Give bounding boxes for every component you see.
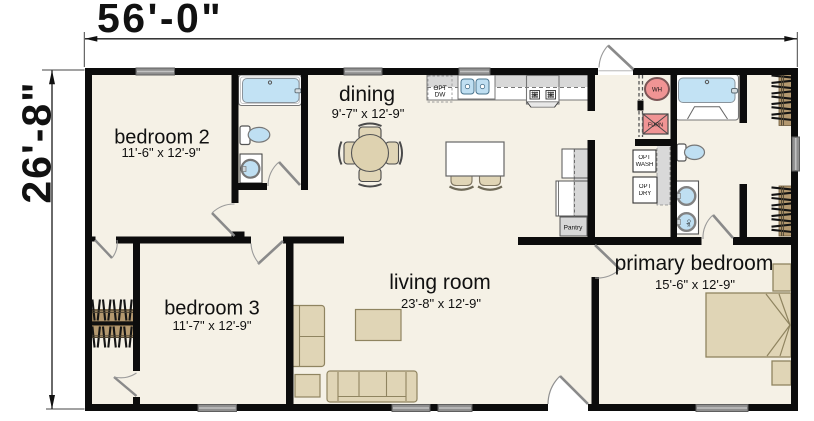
svg-text:bedroom 3: bedroom 3 (164, 298, 260, 320)
svg-text:OPT: OPT (639, 184, 652, 190)
svg-text:DRY: DRY (639, 191, 652, 197)
svg-text:15'-6" x 12'-9": 15'-6" x 12'-9" (655, 277, 735, 292)
svg-text:FURN: FURN (648, 123, 663, 129)
svg-text:Pantry: Pantry (564, 225, 584, 232)
svg-text:dining: dining (339, 83, 395, 106)
svg-text:living room: living room (389, 271, 491, 294)
svg-text:WH: WH (652, 88, 662, 94)
svg-text:9'-7" x 12'-9": 9'-7" x 12'-9" (332, 106, 405, 121)
svg-text:OPT: OPT (638, 155, 651, 161)
svg-text:11'-7" x 12'-9": 11'-7" x 12'-9" (173, 318, 252, 333)
svg-text:11'-6" x 12'-9": 11'-6" x 12'-9" (122, 145, 201, 160)
svg-text:WASH: WASH (636, 162, 654, 168)
svg-text:56'-0": 56'-0" (97, 0, 223, 41)
svg-text:primary bedroom: primary bedroom (615, 252, 774, 275)
svg-text:23'-8" x 12'-9": 23'-8" x 12'-9" (401, 296, 481, 311)
svg-text:Opt: Opt (687, 219, 692, 227)
svg-text:DW: DW (435, 92, 447, 99)
